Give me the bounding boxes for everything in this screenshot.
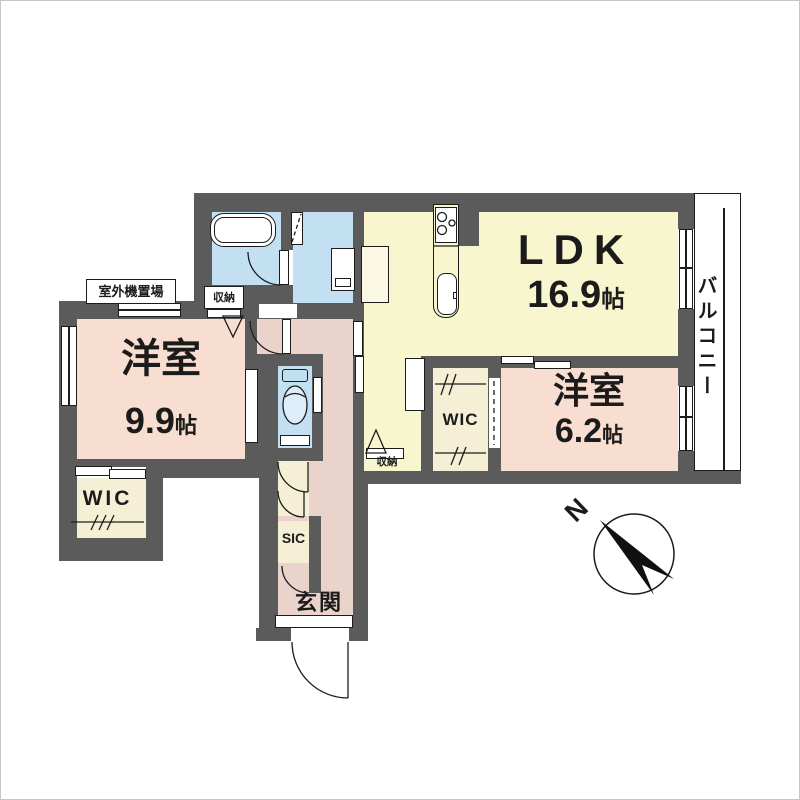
hall-closet-door-arc xyxy=(278,462,308,492)
hanger-symbol-up xyxy=(366,430,386,453)
room-size-ldk: 16.9帖 xyxy=(481,275,671,317)
room-label-ldk: LDK xyxy=(481,227,671,273)
sic-door-arc xyxy=(282,566,309,593)
storage-bath-label: 収納 xyxy=(204,292,244,304)
stove-burner xyxy=(438,226,447,235)
sic-label: SIC xyxy=(278,531,309,546)
plan-symbols xyxy=(1,1,799,799)
room-size-bedroom-main: 9.9帖 xyxy=(86,401,236,441)
stove-burner xyxy=(449,220,455,226)
room-label-bedroom-second: 洋室 xyxy=(504,371,674,411)
washroom-door-arc xyxy=(250,321,283,354)
washroom-cabinet-diagonal xyxy=(292,214,301,242)
stove-burner xyxy=(438,213,447,222)
entrance-door-arc xyxy=(292,642,348,698)
compass-arrow xyxy=(600,520,674,595)
entrance-label: 玄関 xyxy=(284,591,354,615)
balcony-label: バルコニー xyxy=(696,275,720,425)
outdoor-unit-label: 室外機置場 xyxy=(86,279,176,304)
hanger-symbol-down xyxy=(223,316,243,337)
room-size-bedroom-second: 6.2帖 xyxy=(504,413,674,450)
storage-ldk-label: 収納 xyxy=(361,457,413,469)
toilet-bowl xyxy=(283,386,307,424)
floor-plan: LDK 16.9帖 洋室 9.9帖 洋室 6.2帖 WIC WIC SIC 玄関… xyxy=(0,0,800,800)
wic-second-label: WIC xyxy=(433,411,488,430)
hall-closet-door-arc xyxy=(278,491,304,517)
room-label-bedroom-main: 洋室 xyxy=(86,337,236,381)
wic-main-label: WIC xyxy=(69,487,146,510)
bathroom-door-arc xyxy=(248,252,281,285)
